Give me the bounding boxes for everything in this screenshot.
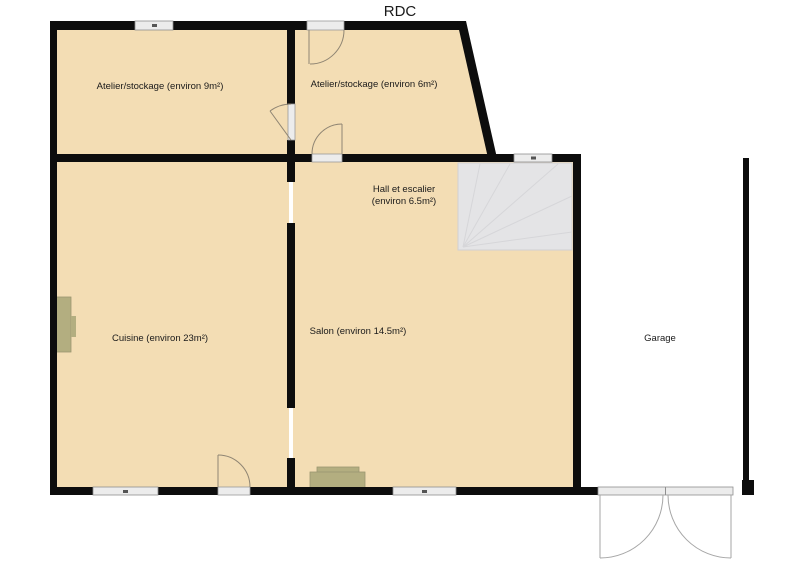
wall-right-main	[573, 154, 581, 495]
room-atelier9-floor	[55, 28, 289, 156]
wall-cuisine-divider-top	[287, 162, 295, 182]
room-atelier9-label: Atelier/stockage (environ 9m²)	[97, 81, 224, 92]
door-threshold	[288, 104, 295, 140]
wall-top	[50, 21, 466, 30]
room-hall-label-line2: (environ 6.5m²)	[372, 196, 436, 207]
room-salon-label: Salon (environ 14.5m²)	[310, 326, 407, 337]
window-tick	[531, 157, 536, 160]
room-cuisine-label: Cuisine (environ 23m²)	[112, 333, 208, 344]
door-threshold	[307, 21, 344, 30]
door-threshold	[312, 154, 342, 162]
wall-garage-right	[743, 158, 749, 488]
staircase	[458, 163, 572, 250]
wall-atelier-divider-lower	[287, 140, 295, 156]
radiator-tab	[71, 316, 76, 337]
garage-door	[598, 487, 733, 558]
sofa	[310, 467, 365, 488]
window-tick	[152, 24, 157, 27]
floor-plan-canvas: RDC Atelier/stockage (environ 9m²) Ateli…	[0, 0, 800, 569]
room-garage-label: Garage	[644, 333, 676, 344]
window-tick	[123, 490, 128, 493]
garage-door-arc-left	[600, 495, 663, 558]
room-atelier6-floor	[293, 28, 490, 156]
room-hall-label-line1: Hall et escalier	[373, 184, 435, 195]
sofa-seat	[310, 472, 365, 488]
wall-atelier-divider-upper	[287, 28, 295, 105]
room-cuisine-floor	[55, 156, 289, 488]
door-threshold	[218, 487, 250, 495]
room-floors	[55, 28, 577, 488]
radiator-body	[56, 297, 71, 352]
wall-cuisine-divider-bottom	[287, 458, 295, 489]
plan-title: RDC	[384, 3, 417, 20]
window-tick	[422, 490, 427, 493]
floor-plan-page: RDC Atelier/stockage (environ 9m²) Ateli…	[0, 0, 800, 569]
garage-door-arc-right	[668, 495, 731, 558]
room-atelier6-label: Atelier/stockage (environ 6m²)	[311, 79, 438, 90]
wall-cuisine-divider-middle	[287, 223, 295, 408]
wall-left	[50, 21, 57, 495]
wall-garage-corner	[742, 480, 754, 495]
